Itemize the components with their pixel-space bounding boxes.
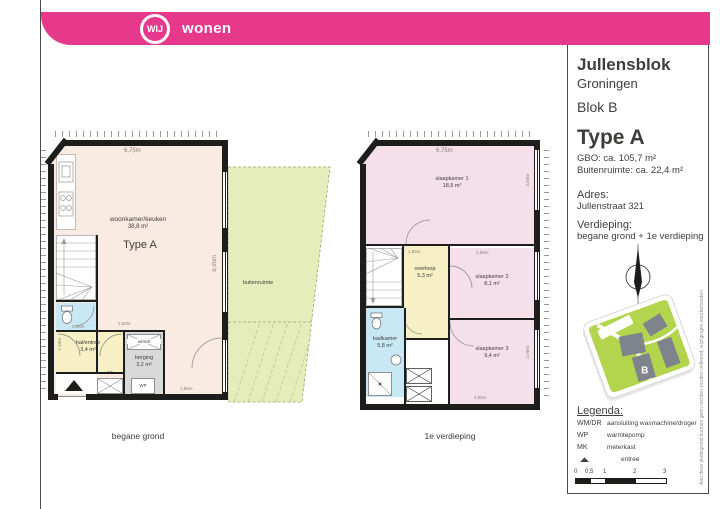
sidebar-divider-rule <box>567 45 568 493</box>
wall <box>450 318 536 320</box>
dimension-ticks <box>544 150 549 400</box>
wall <box>404 308 406 404</box>
dimension-ticks <box>368 131 536 137</box>
address-label: Adres: <box>577 189 609 201</box>
room-label-landing: overloop 5,3 m² <box>402 266 448 280</box>
scale-tick: 2 <box>633 469 636 475</box>
project-city: Groningen <box>577 76 638 91</box>
wall <box>56 330 165 332</box>
scale-bar: 0 0,5 1 2 3 <box>575 469 667 485</box>
outdoor-area-value: Buitenruimte: ca. 22,4 m² <box>577 165 683 176</box>
wall <box>448 246 450 404</box>
wall <box>56 372 123 374</box>
gbo-value: GBO: ca. 105,7 m² <box>577 153 656 164</box>
project-title: Jullensblok <box>577 55 671 75</box>
room-label-living: woonkamer/keuken 38,8 m² <box>68 216 208 232</box>
legend-abbr: MK <box>577 444 607 451</box>
entree-triangle-icon: ▲ <box>577 456 634 463</box>
dim-label: 2,50m <box>118 321 131 326</box>
legend-item-mk: MK meterkast <box>577 444 705 451</box>
floor-label: Verdieping: <box>577 219 632 231</box>
legend-abbr: WM/DR <box>577 420 607 427</box>
ground-floor-plan: wm/dr mk WP <box>48 140 228 400</box>
dim-label: 6,75m <box>124 148 141 154</box>
wall <box>360 404 540 410</box>
dim-label: 2,95m <box>525 346 530 359</box>
brand-logo-icon: WIJ <box>140 14 170 44</box>
wall <box>364 244 536 246</box>
wall <box>534 210 540 252</box>
site-map: B <box>578 292 702 404</box>
legend-label: aansluiting wasmachine/droger <box>607 420 697 427</box>
dim-label: 1,86m <box>408 249 421 254</box>
window <box>534 150 540 210</box>
wall <box>86 394 228 400</box>
wall <box>534 300 540 330</box>
legend-item-entree: ▲ entree <box>577 456 705 463</box>
room-label-bedroom3: slaapkamer 3 9,4 m² <box>450 346 534 360</box>
scale-tick: 1 <box>603 469 606 475</box>
legend-abbr: WP <box>577 432 607 439</box>
wall <box>364 306 404 308</box>
scale-tick: 0,5 <box>585 469 593 475</box>
legend-title: Legenda: <box>577 405 623 417</box>
wall <box>360 164 366 410</box>
wall <box>48 394 58 400</box>
dim-label: 2,66m <box>476 250 489 255</box>
dim-label: 6,75m <box>436 148 453 154</box>
room-label-bedroom2: slaapkamer 2 8,1 m² <box>450 274 534 288</box>
dim-label: 1,86m <box>180 386 193 391</box>
wall <box>64 140 228 146</box>
wall <box>163 330 165 394</box>
room-label-bedroom1: slaapkamer 1 18,5 m² <box>382 176 522 190</box>
brand-header-bar: WIJ wonen <box>41 12 710 45</box>
right-frame-rule <box>708 12 709 493</box>
legend-label: warmtepomp <box>607 432 645 439</box>
wall <box>48 164 54 400</box>
legend-item-wp: WP warmtepomp <box>577 432 705 439</box>
map-marker-b-label: B <box>641 366 648 377</box>
first-floor-plan: slaapkamer 1 18,5 m² overloop 5,3 m² sla… <box>360 140 540 410</box>
first-floor-caption: 1e verdieping <box>360 431 540 441</box>
window <box>534 252 540 300</box>
floor-value: begane grond + 1e verdieping <box>577 231 704 242</box>
room-label-storage: berging 3,2 m² <box>125 355 163 369</box>
address-value: Jullenstraat 321 <box>577 201 644 212</box>
brand-wordmark: wonen <box>182 20 232 37</box>
brand-logo-text: WIJ <box>147 24 163 34</box>
room-label-hall: hal/entree 3,4 m² <box>60 340 116 354</box>
window <box>534 330 540 388</box>
outdoor-space-label: buitenruimte <box>220 280 296 286</box>
block-label: Blok B <box>577 99 617 115</box>
wall <box>534 388 540 410</box>
dimension-ticks <box>41 150 46 390</box>
ground-floor-caption: begane grond <box>48 431 228 441</box>
dim-label: 2,66m <box>72 324 85 329</box>
wall <box>534 140 540 150</box>
wall <box>404 338 448 340</box>
entrance-door <box>58 396 86 397</box>
dim-label: 3,05m <box>474 395 487 400</box>
type-title: Type A <box>577 126 645 150</box>
floorplan-sheet: WIJ wonen Jullensblok Groningen Blok B T… <box>0 0 720 509</box>
type-a-plan-label: Type A <box>100 238 180 252</box>
disclaimer-text: Aan deze plattegrond kunnen geen rechten… <box>699 245 705 485</box>
scale-tick: 0 <box>574 469 577 475</box>
dim-label: 1,40m <box>57 338 62 351</box>
scale-bar-segments <box>575 478 667 484</box>
wall <box>376 140 540 146</box>
legend-label: meterkast <box>607 444 636 451</box>
legend-item-wmdr: WM/DR aansluiting wasmachine/droger <box>577 420 705 427</box>
scale-tick: 3 <box>663 469 666 475</box>
dim-label: 3,03m <box>525 174 530 187</box>
dim-label: 8,95m <box>212 255 218 272</box>
dimension-ticks <box>55 131 223 137</box>
bottom-frame-rule <box>567 493 709 494</box>
wall <box>56 300 96 302</box>
room-label-bathroom: badkamer 5,8 m² <box>366 336 404 350</box>
